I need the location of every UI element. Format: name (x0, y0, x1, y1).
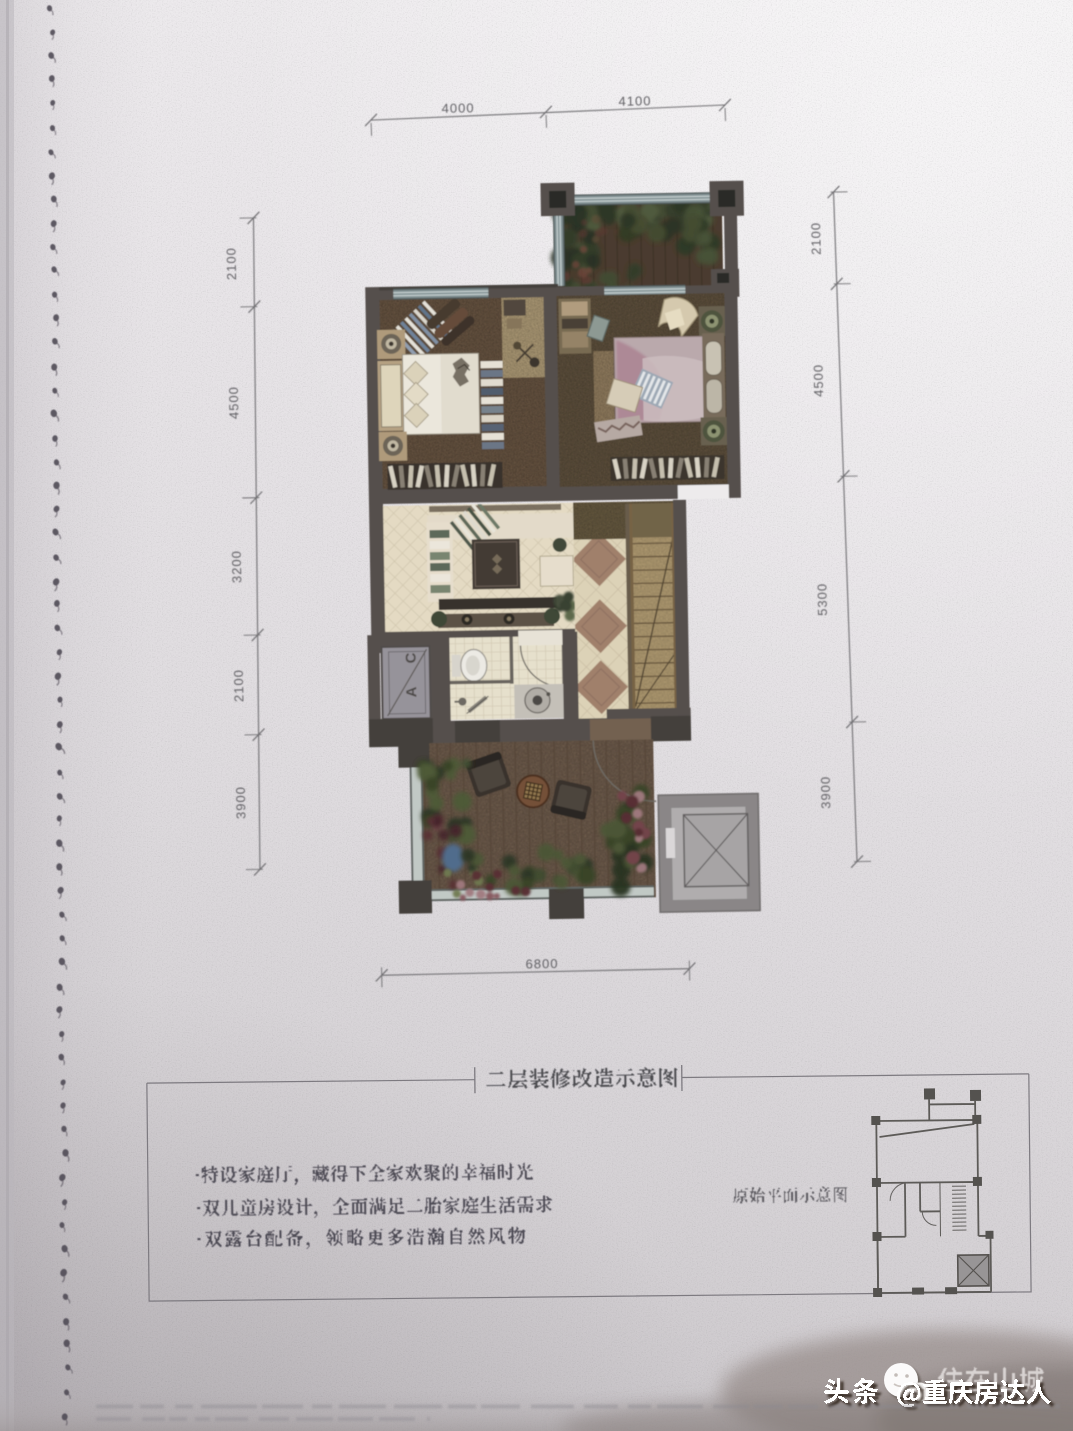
svg-text:3900: 3900 (233, 786, 249, 819)
svg-text:3900: 3900 (818, 776, 834, 809)
svg-text:A: A (403, 686, 420, 697)
svg-text:2100: 2100 (231, 669, 247, 702)
svg-text:4100: 4100 (618, 93, 651, 109)
svg-text:4500: 4500 (226, 386, 242, 419)
svg-text:4500: 4500 (811, 364, 827, 397)
svg-text:2100: 2100 (808, 222, 824, 255)
svg-text:3200: 3200 (229, 550, 245, 583)
svg-text:5300: 5300 (814, 583, 830, 616)
svg-text:4000: 4000 (442, 100, 475, 116)
svg-text:2100: 2100 (223, 247, 239, 280)
svg-text:6800: 6800 (525, 956, 558, 972)
svg-text:C: C (403, 652, 420, 663)
